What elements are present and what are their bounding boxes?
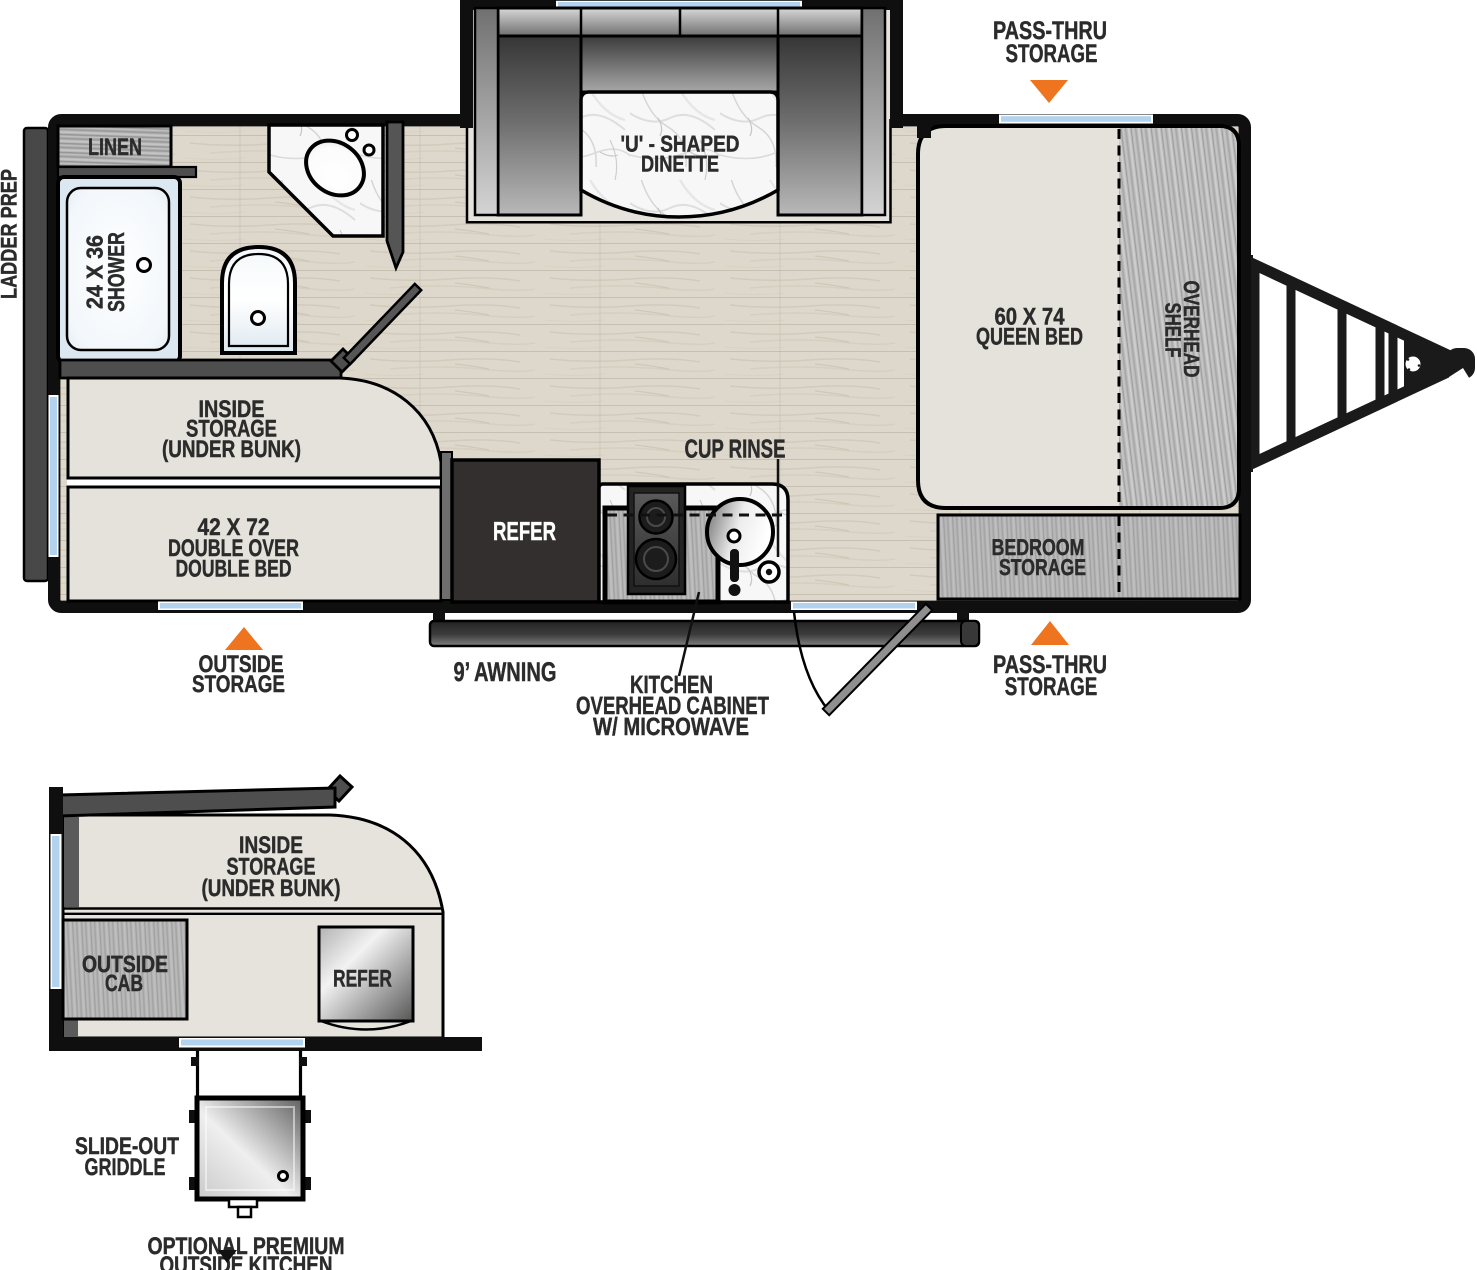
svg-text:LINEN: LINEN (88, 134, 142, 161)
svg-text:DOUBLE BED: DOUBLE BED (176, 556, 292, 583)
svg-text:QUEEN BED: QUEEN BED (976, 324, 1083, 351)
svg-text:W/ MICROWAVE: W/ MICROWAVE (593, 713, 749, 741)
svg-text:SHELF: SHELF (1161, 303, 1186, 358)
svg-text:CAB: CAB (105, 970, 143, 996)
svg-text:REFER: REFER (493, 516, 556, 546)
svg-text:9’ AWNING: 9’ AWNING (454, 657, 557, 687)
svg-text:OUTSIDE KITCHEN: OUTSIDE KITCHEN (160, 1252, 333, 1270)
svg-text:LADDER PREP: LADDER PREP (0, 169, 22, 299)
svg-text:STORAGE: STORAGE (1005, 673, 1098, 701)
svg-text:DINETTE: DINETTE (641, 151, 719, 177)
svg-text:STORAGE: STORAGE (999, 554, 1086, 580)
svg-text:STORAGE: STORAGE (1006, 40, 1098, 68)
svg-text:GRIDDLE: GRIDDLE (85, 1154, 166, 1181)
svg-text:(UNDER BUNK): (UNDER BUNK) (162, 436, 301, 463)
svg-text:REFER: REFER (333, 966, 392, 993)
svg-text:STORAGE: STORAGE (192, 671, 285, 698)
svg-text:CUP RINSE: CUP RINSE (685, 434, 786, 464)
svg-text:(UNDER BUNK): (UNDER BUNK) (202, 875, 341, 902)
svg-text:SHOWER: SHOWER (103, 232, 129, 312)
